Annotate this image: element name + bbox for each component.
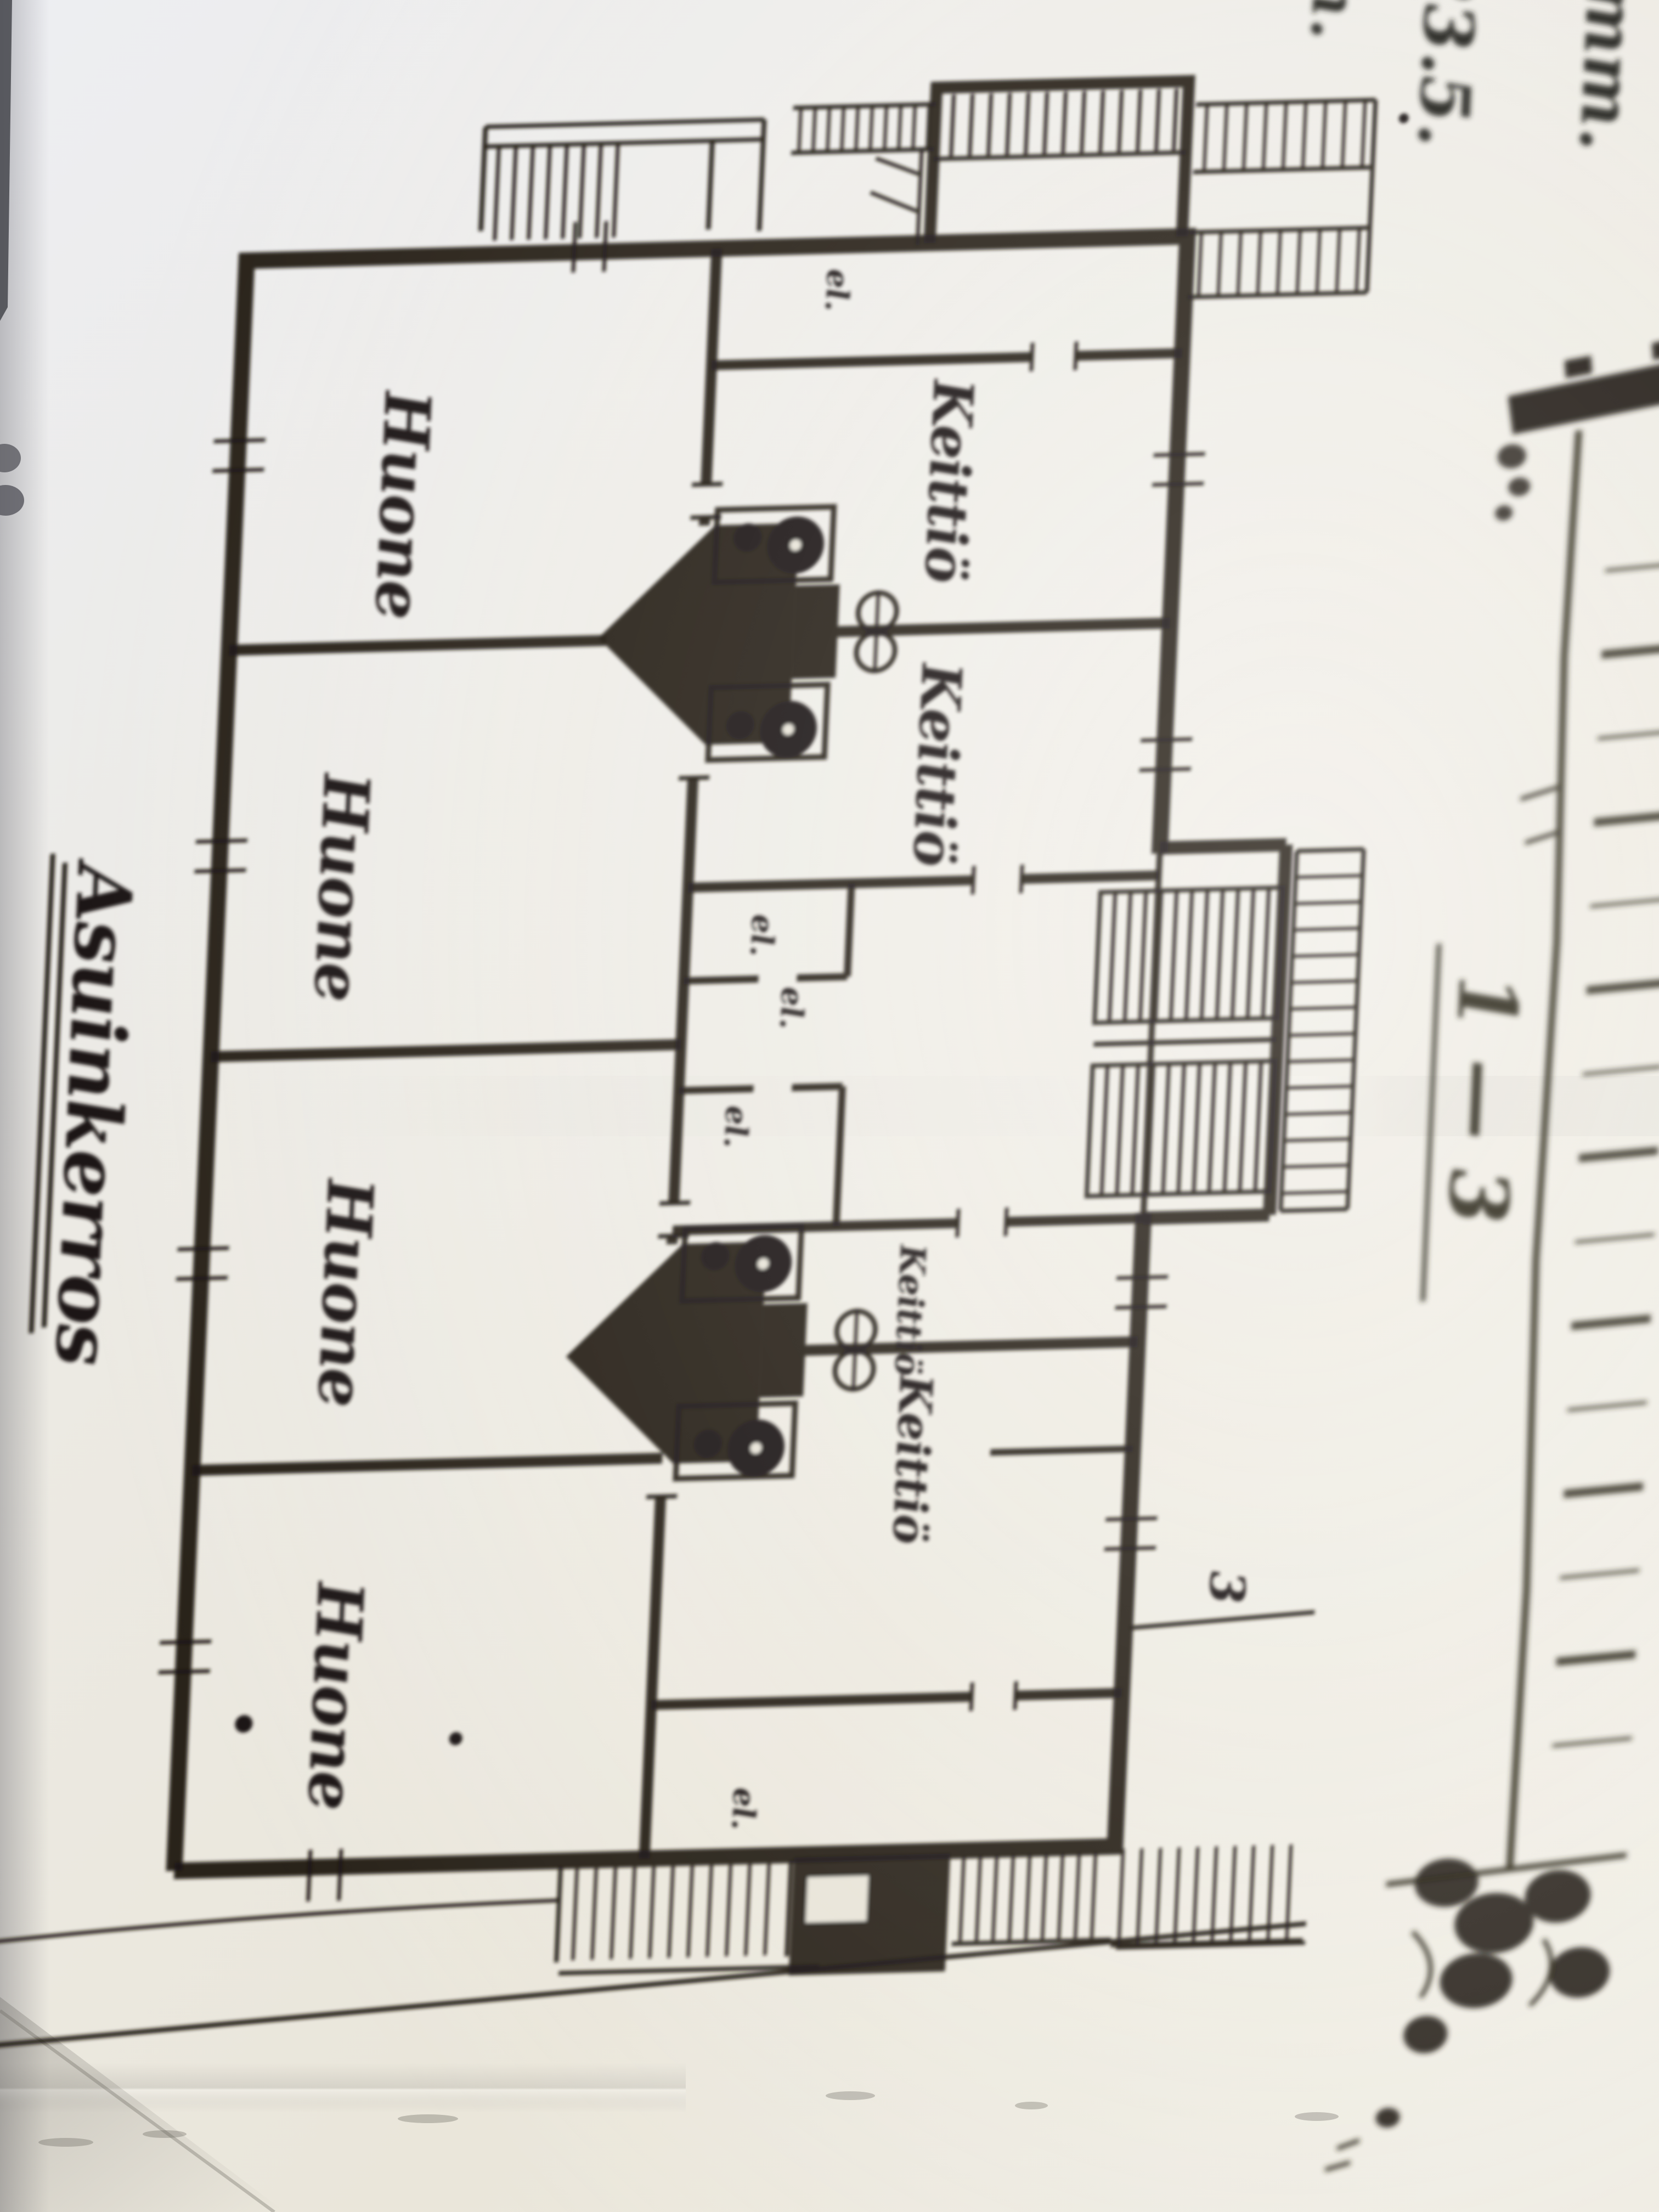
floor-plan-photo-svg: Huone Huone Huone Huone Keittiö Keittiö … (0, 0, 1659, 2212)
photo-of-floor-plan: Huone Huone Huone Huone Keittiö Keittiö … (0, 0, 1659, 2212)
photo-vignette (0, 0, 1659, 2212)
